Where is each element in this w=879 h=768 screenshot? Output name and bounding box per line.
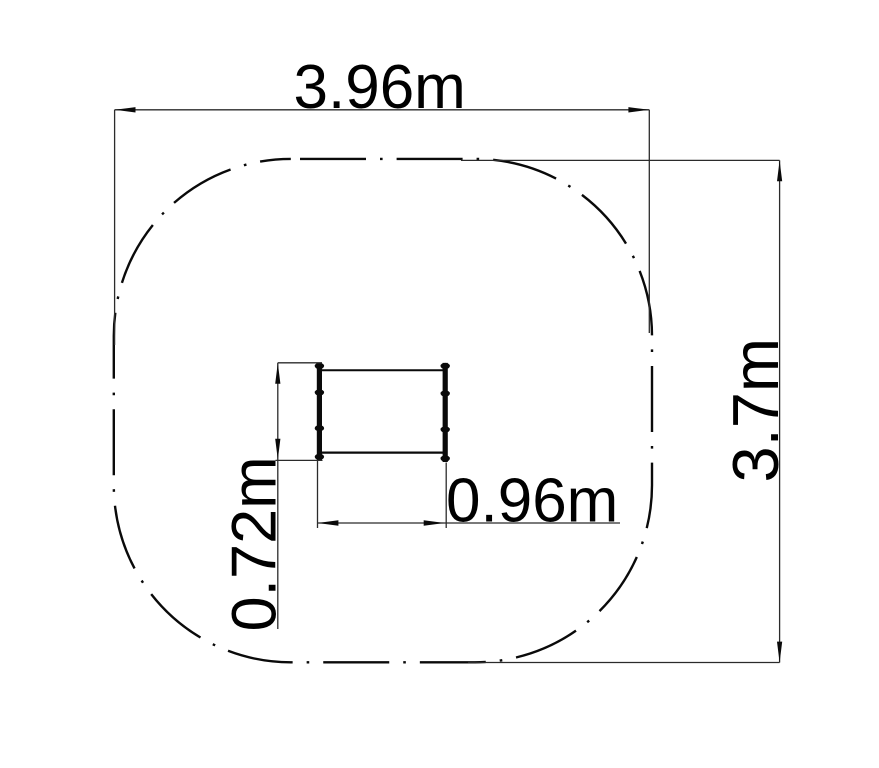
svg-text:3.7m: 3.7m <box>719 338 792 483</box>
svg-text:0.72m: 0.72m <box>220 456 290 631</box>
svg-text:3.96m: 3.96m <box>294 53 466 122</box>
svg-text:0.96m: 0.96m <box>446 467 618 536</box>
